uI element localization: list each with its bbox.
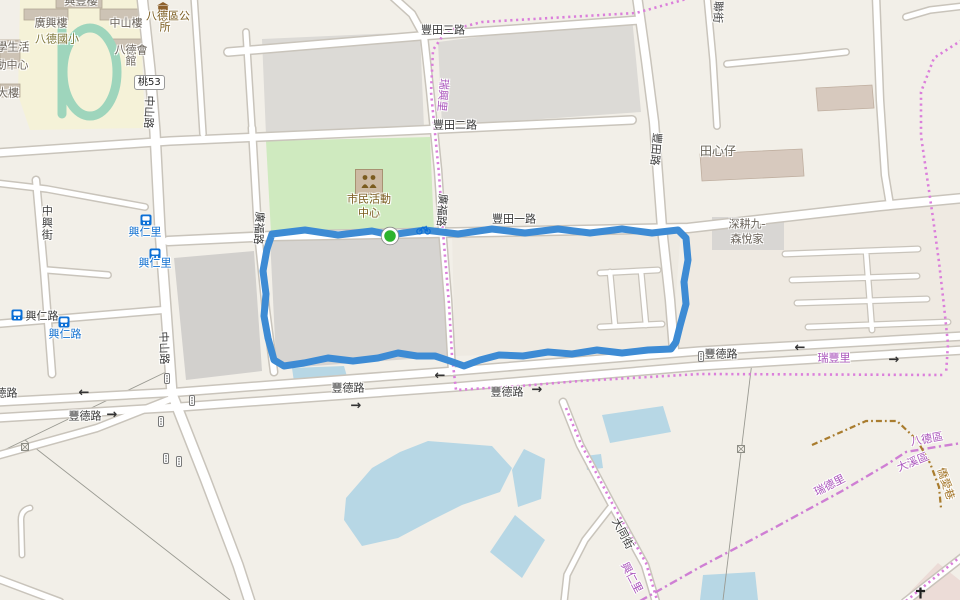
water-layer (292, 366, 758, 600)
map-canvas[interactable]: 桃53 興豐樓廣興樓中山樓八德區公所八德國小八德會館學生活動中心大樓中山路中山路… (0, 0, 960, 600)
route-start-marker (381, 227, 399, 245)
road-ref-badge: 桃53 (134, 75, 165, 90)
map-base-layers (0, 0, 960, 600)
